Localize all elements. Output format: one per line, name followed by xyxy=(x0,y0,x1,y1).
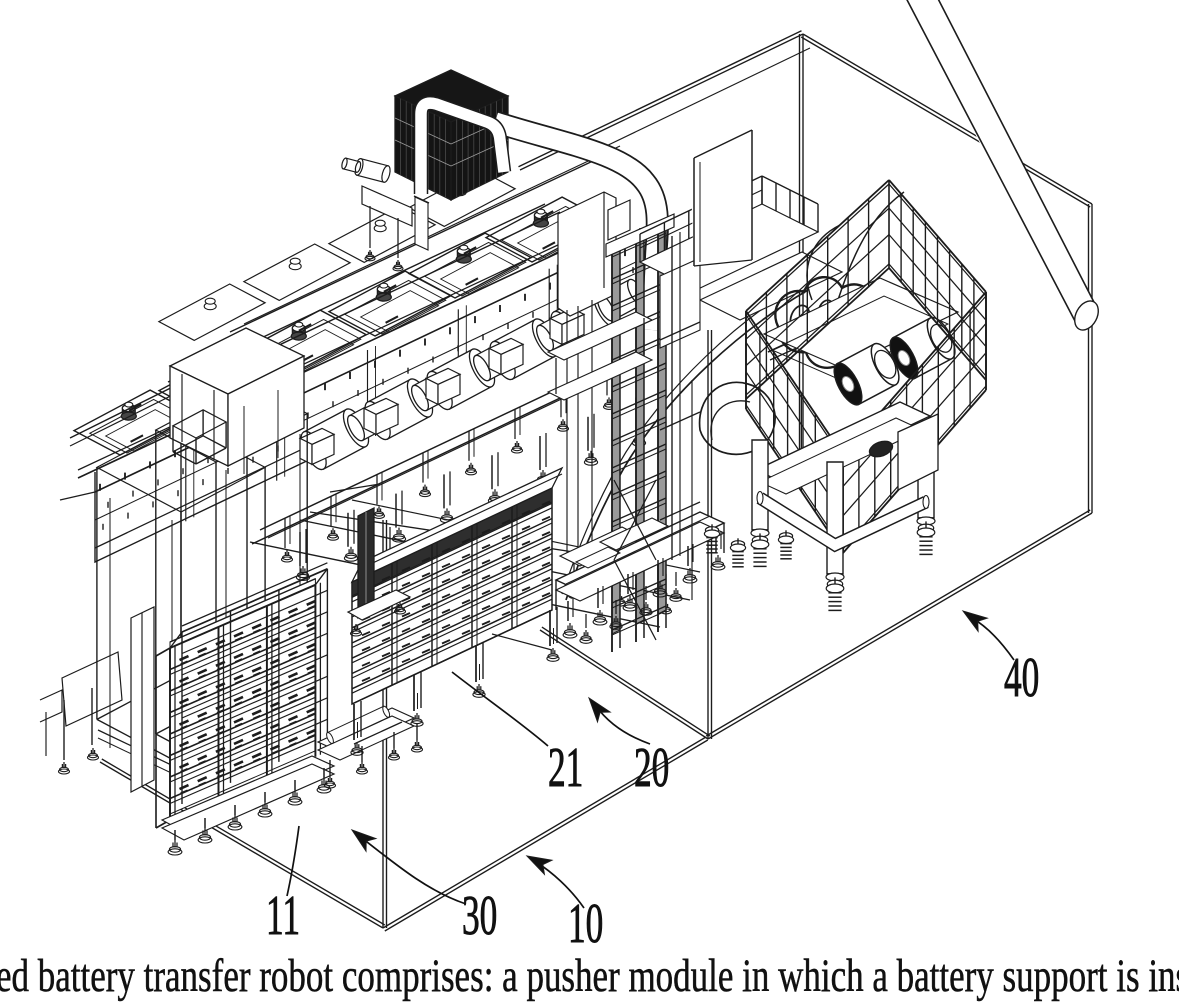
svg-text:30: 30 xyxy=(462,885,497,947)
svg-text:10: 10 xyxy=(568,893,603,955)
svg-text:21: 21 xyxy=(548,737,583,799)
svg-text:40: 40 xyxy=(1004,647,1039,709)
svg-text:20: 20 xyxy=(634,737,669,799)
svg-text:11: 11 xyxy=(266,885,300,947)
svg-text:ed battery transfer robot comp: ed battery transfer robot comprises: a p… xyxy=(0,949,1179,1001)
